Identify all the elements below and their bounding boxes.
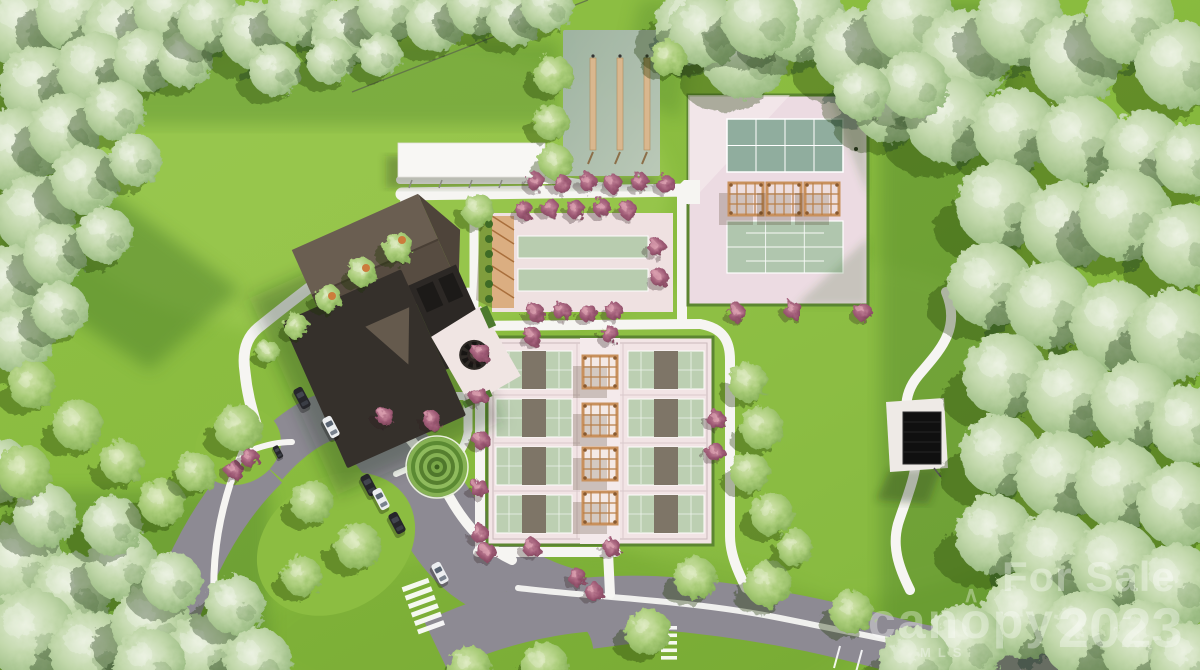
site-plan-rendering (0, 0, 1200, 670)
site-plan-scene: For Sale canopy ∧ MLS 2023 (0, 0, 1200, 670)
bocce-lawn-pad (476, 213, 673, 312)
labyrinth-garden (406, 436, 468, 498)
event-canopy (386, 143, 545, 188)
pickleball-complex (487, 337, 713, 545)
